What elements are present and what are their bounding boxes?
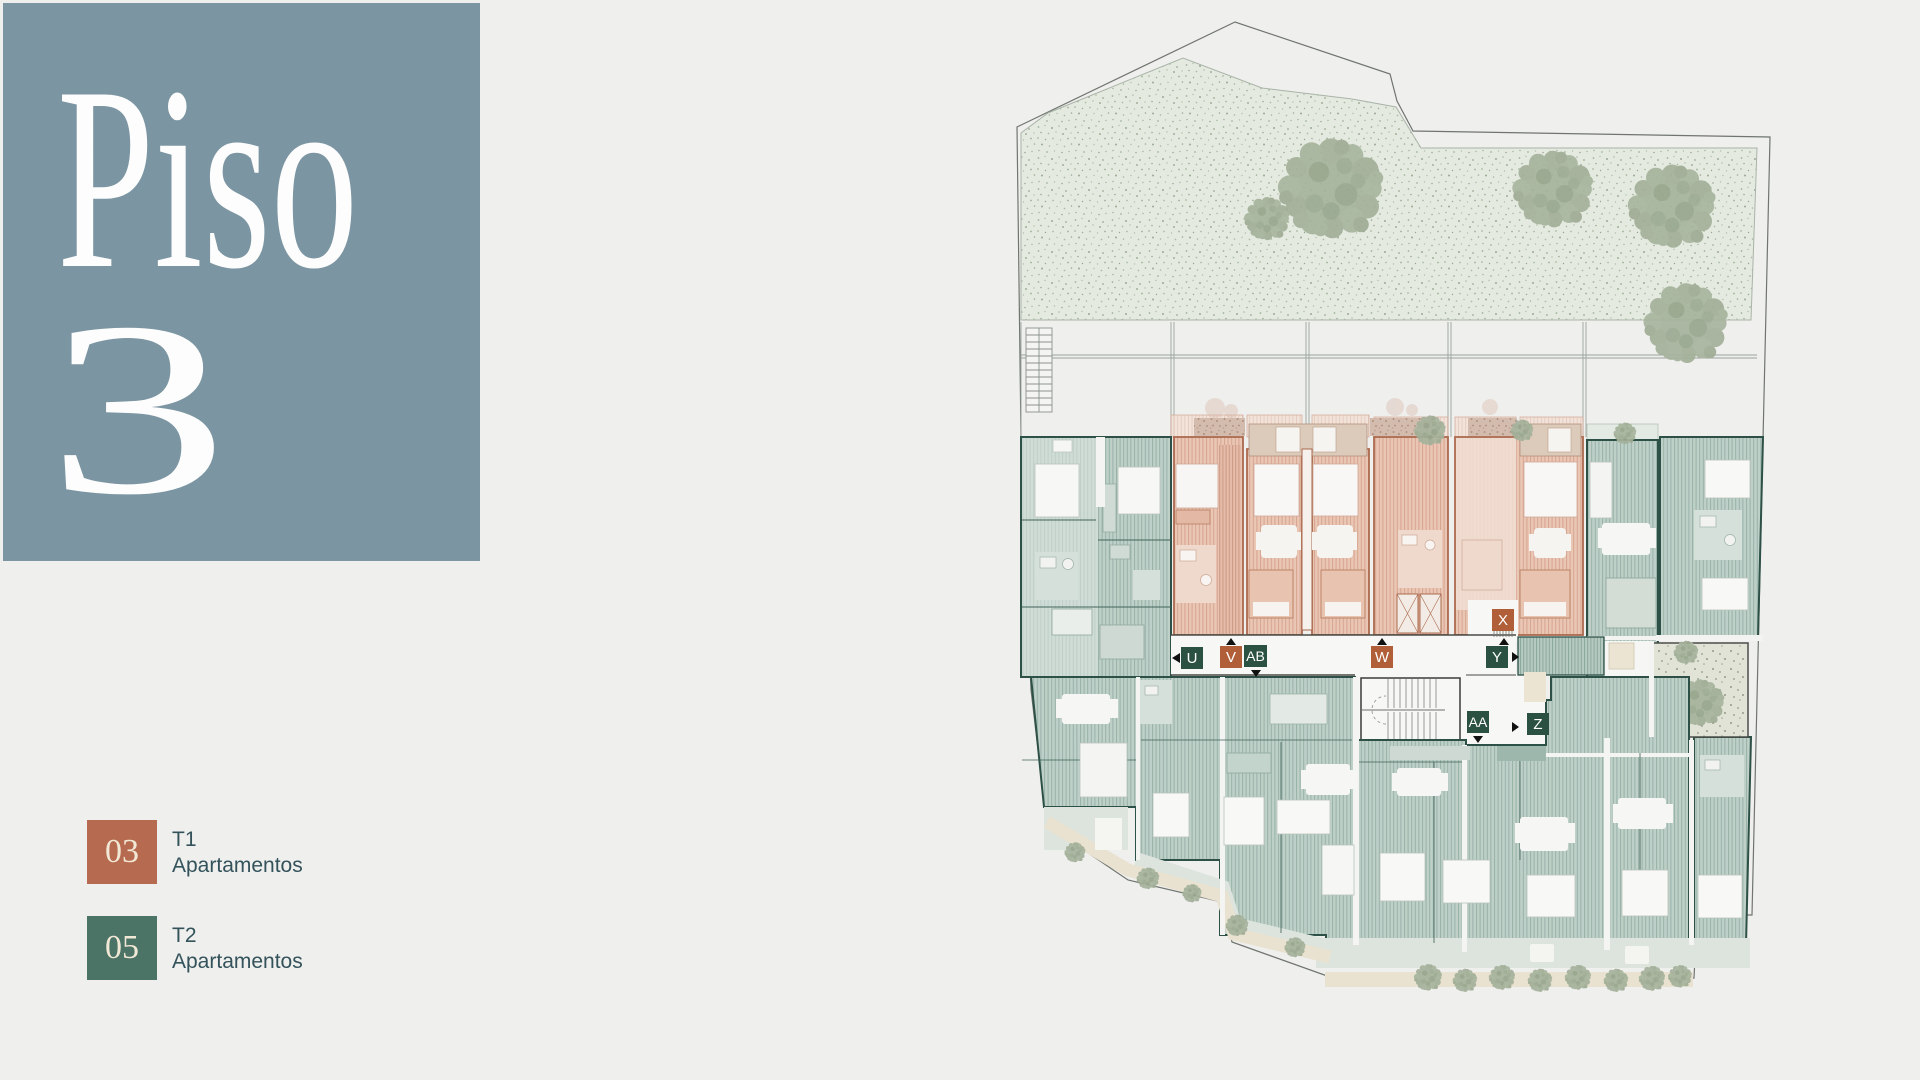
svg-text:X: X <box>1498 612 1508 629</box>
svg-text:Y: Y <box>1492 649 1502 666</box>
svg-text:U: U <box>1187 650 1198 667</box>
svg-text:W: W <box>1375 649 1390 666</box>
svg-text:AA: AA <box>1469 714 1488 730</box>
svg-text:Z: Z <box>1533 716 1542 733</box>
svg-text:AB: AB <box>1246 648 1265 664</box>
svg-text:V: V <box>1226 649 1236 666</box>
